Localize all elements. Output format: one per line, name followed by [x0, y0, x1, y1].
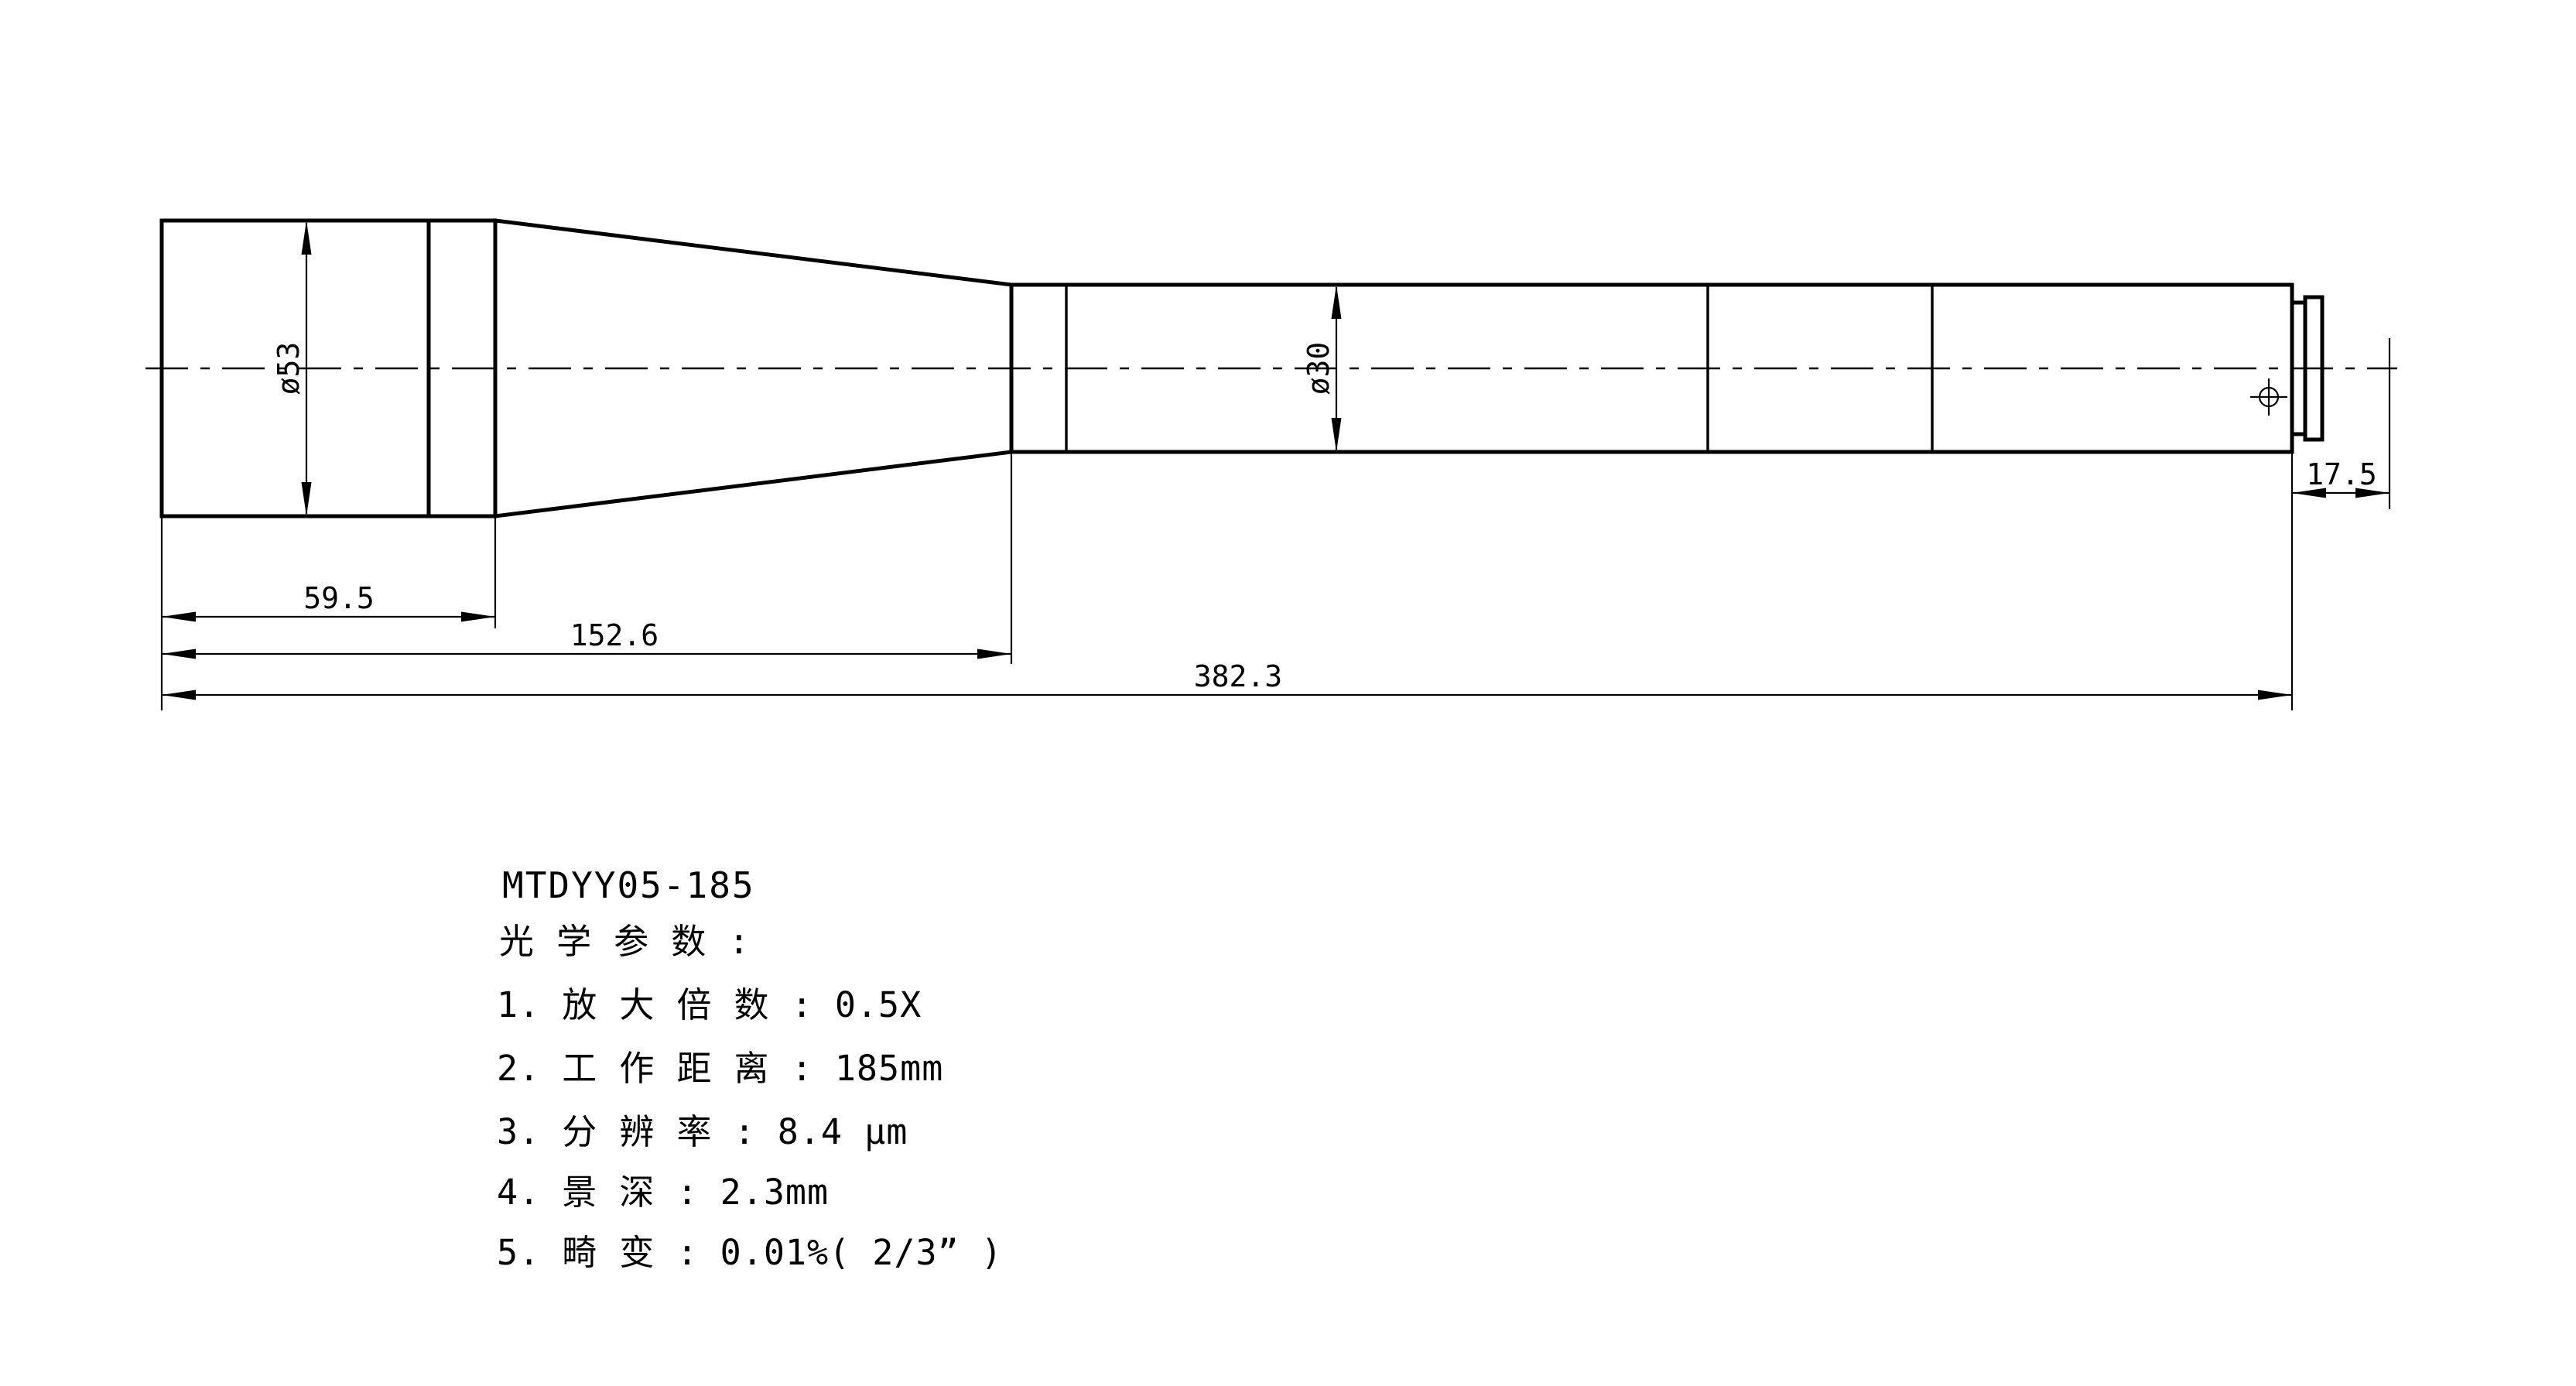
dimension-total-length: 382.3: [162, 659, 2292, 700]
dimension-flange-distance: 17.5: [2292, 457, 2390, 498]
taper-top-line: [495, 221, 1011, 285]
dim-text-total-length: 382.3: [1194, 659, 1282, 693]
spec-heading: 光 学 参 数 :: [499, 921, 750, 962]
arrowhead-up: [1332, 285, 1342, 319]
dim-text-front-length: 59.5: [303, 581, 375, 615]
arrowhead-right: [977, 649, 1011, 659]
lens-drawing-page: ø53 ø30 59.5 152.6 382.3: [0, 0, 2576, 1386]
dim-text-flange-distance: 17.5: [2306, 457, 2377, 491]
arrowhead-right: [461, 612, 495, 622]
spec-item-depth-of-field: 4. 景 深 : 2.3mm: [497, 1172, 829, 1213]
taper-bottom-line: [495, 452, 1011, 516]
arrowhead-left: [162, 690, 196, 700]
spec-item-distortion: 5. 畸 变 : 0.01%( 2/3” ): [497, 1232, 1003, 1273]
arrowhead-right: [2258, 690, 2292, 700]
arrowhead-down: [302, 482, 312, 516]
dimension-tube-diameter: ø30: [1302, 285, 1342, 452]
dimension-front-length: 59.5: [162, 581, 495, 622]
dim-text-tube-diameter: ø30: [1302, 342, 1336, 395]
model-number: MTDYY05-185: [502, 864, 755, 906]
spec-item-resolution: 3. 分 辨 率 : 8.4 μm: [497, 1111, 908, 1152]
arrowhead-left: [162, 649, 196, 659]
spec-item-magnification: 1. 放 大 倍 数 : 0.5X: [497, 984, 922, 1025]
dimension-front-diameter: ø53: [272, 221, 312, 516]
dim-text-front-diameter: ø53: [272, 342, 306, 395]
arrowhead-left: [162, 612, 196, 622]
arrowhead-down: [1332, 418, 1342, 452]
dimension-front-plus-taper: 152.6: [162, 618, 1011, 659]
arrowhead-up: [302, 221, 312, 255]
spec-item-working-distance: 2. 工 作 距 离 : 185mm: [497, 1048, 943, 1089]
datum-target-mark: [2250, 378, 2287, 416]
spec-block: MTDYY05-185 光 学 参 数 : 1. 放 大 倍 数 : 0.5X …: [497, 864, 1003, 1273]
dim-text-front-plus-taper: 152.6: [570, 618, 659, 652]
technical-drawing: ø53 ø30 59.5 152.6 382.3: [0, 0, 2576, 1386]
